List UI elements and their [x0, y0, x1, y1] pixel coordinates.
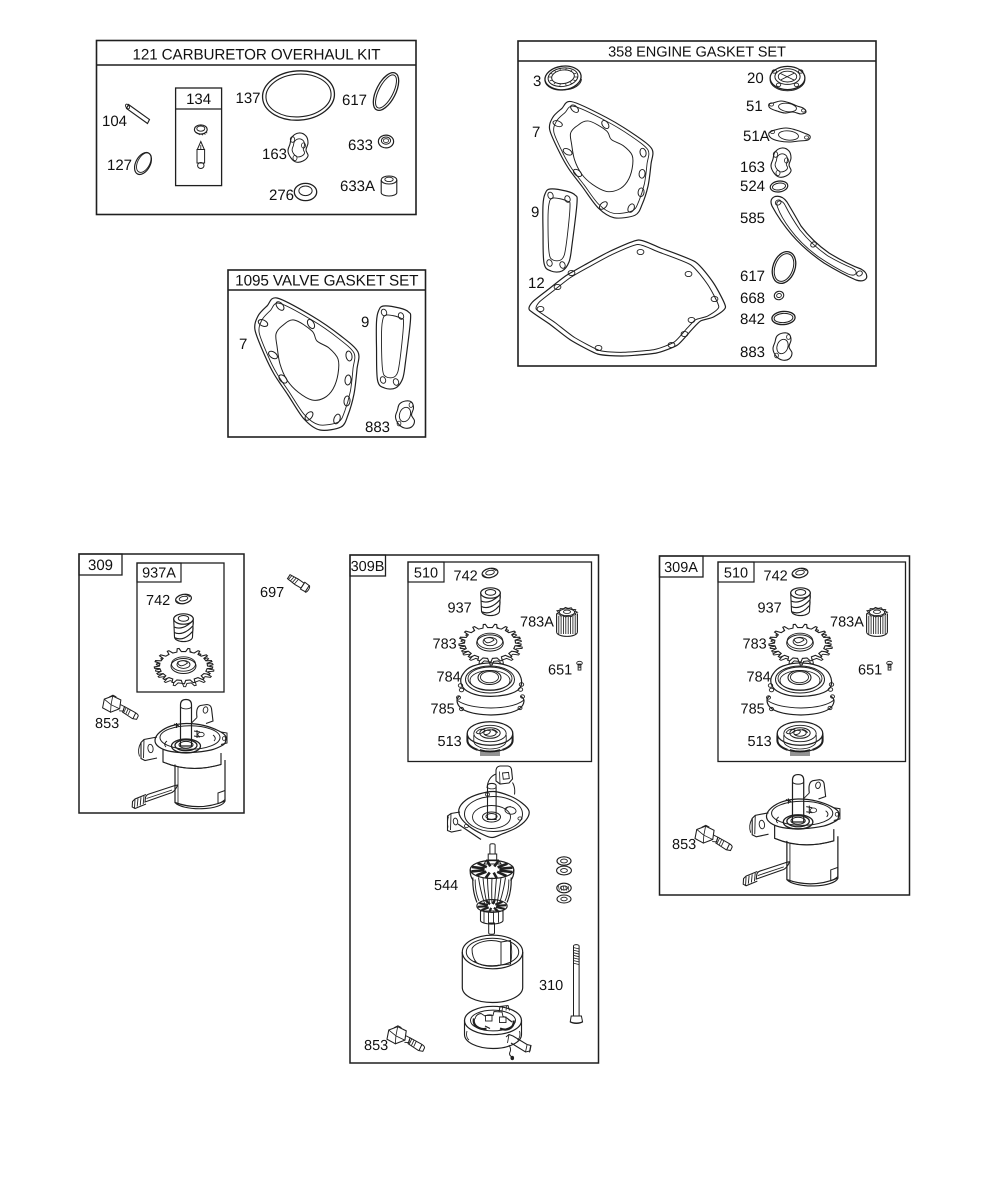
svg-text:1095 VALVE GASKET SET: 1095 VALVE GASKET SET: [235, 273, 418, 290]
svg-text:513: 513: [438, 734, 462, 750]
svg-text:783A: 783A: [520, 615, 554, 631]
svg-text:668: 668: [740, 290, 765, 307]
svg-text:12: 12: [528, 275, 545, 292]
svg-text:104: 104: [102, 113, 127, 130]
svg-text:310: 310: [539, 978, 563, 994]
svg-text:783A: 783A: [830, 615, 864, 631]
svg-text:121 CARBURETOR OVERHAUL KIT: 121 CARBURETOR OVERHAUL KIT: [133, 47, 381, 64]
svg-text:853: 853: [364, 1038, 388, 1054]
svg-text:163: 163: [262, 146, 287, 163]
svg-text:51: 51: [746, 98, 763, 115]
svg-text:617: 617: [740, 268, 765, 285]
svg-text:510: 510: [724, 566, 748, 582]
svg-text:785: 785: [431, 702, 455, 718]
svg-text:633: 633: [348, 137, 373, 154]
svg-text:783: 783: [433, 637, 457, 653]
svg-text:617: 617: [342, 92, 367, 109]
svg-text:358 ENGINE GASKET SET: 358 ENGINE GASKET SET: [608, 45, 786, 61]
svg-text:937: 937: [448, 601, 472, 617]
svg-text:276: 276: [269, 187, 294, 204]
svg-text:783: 783: [743, 637, 767, 653]
svg-text:853: 853: [672, 837, 696, 853]
svg-text:651: 651: [858, 663, 882, 679]
svg-text:163: 163: [740, 159, 765, 176]
svg-text:937A: 937A: [142, 566, 176, 582]
svg-text:544: 544: [434, 878, 458, 894]
svg-text:785: 785: [741, 702, 765, 718]
svg-text:9: 9: [361, 314, 369, 331]
svg-text:7: 7: [532, 124, 540, 141]
svg-text:651: 651: [548, 663, 572, 679]
svg-text:742: 742: [764, 569, 788, 585]
svg-text:137: 137: [236, 90, 261, 107]
svg-text:633A: 633A: [340, 178, 375, 195]
svg-text:7: 7: [239, 336, 247, 353]
svg-text:20: 20: [747, 70, 764, 87]
svg-text:742: 742: [146, 593, 170, 609]
svg-text:937: 937: [758, 601, 782, 617]
svg-text:309B: 309B: [351, 559, 385, 575]
svg-text:510: 510: [414, 566, 438, 582]
svg-text:309A: 309A: [664, 560, 698, 576]
svg-text:784: 784: [747, 670, 771, 686]
svg-text:853: 853: [95, 716, 119, 732]
svg-text:883: 883: [365, 419, 390, 436]
svg-text:742: 742: [454, 569, 478, 585]
svg-text:127: 127: [107, 157, 132, 174]
svg-text:513: 513: [748, 734, 772, 750]
svg-text:134: 134: [186, 91, 211, 108]
svg-text:9: 9: [531, 204, 539, 221]
svg-text:3: 3: [533, 73, 541, 90]
svg-text:784: 784: [437, 670, 461, 686]
svg-text:883: 883: [740, 344, 765, 361]
svg-text:842: 842: [740, 311, 765, 328]
svg-text:309: 309: [88, 557, 113, 574]
svg-text:697: 697: [260, 585, 284, 601]
svg-text:51A: 51A: [743, 128, 770, 145]
svg-text:524: 524: [740, 178, 765, 195]
svg-text:585: 585: [740, 210, 765, 227]
